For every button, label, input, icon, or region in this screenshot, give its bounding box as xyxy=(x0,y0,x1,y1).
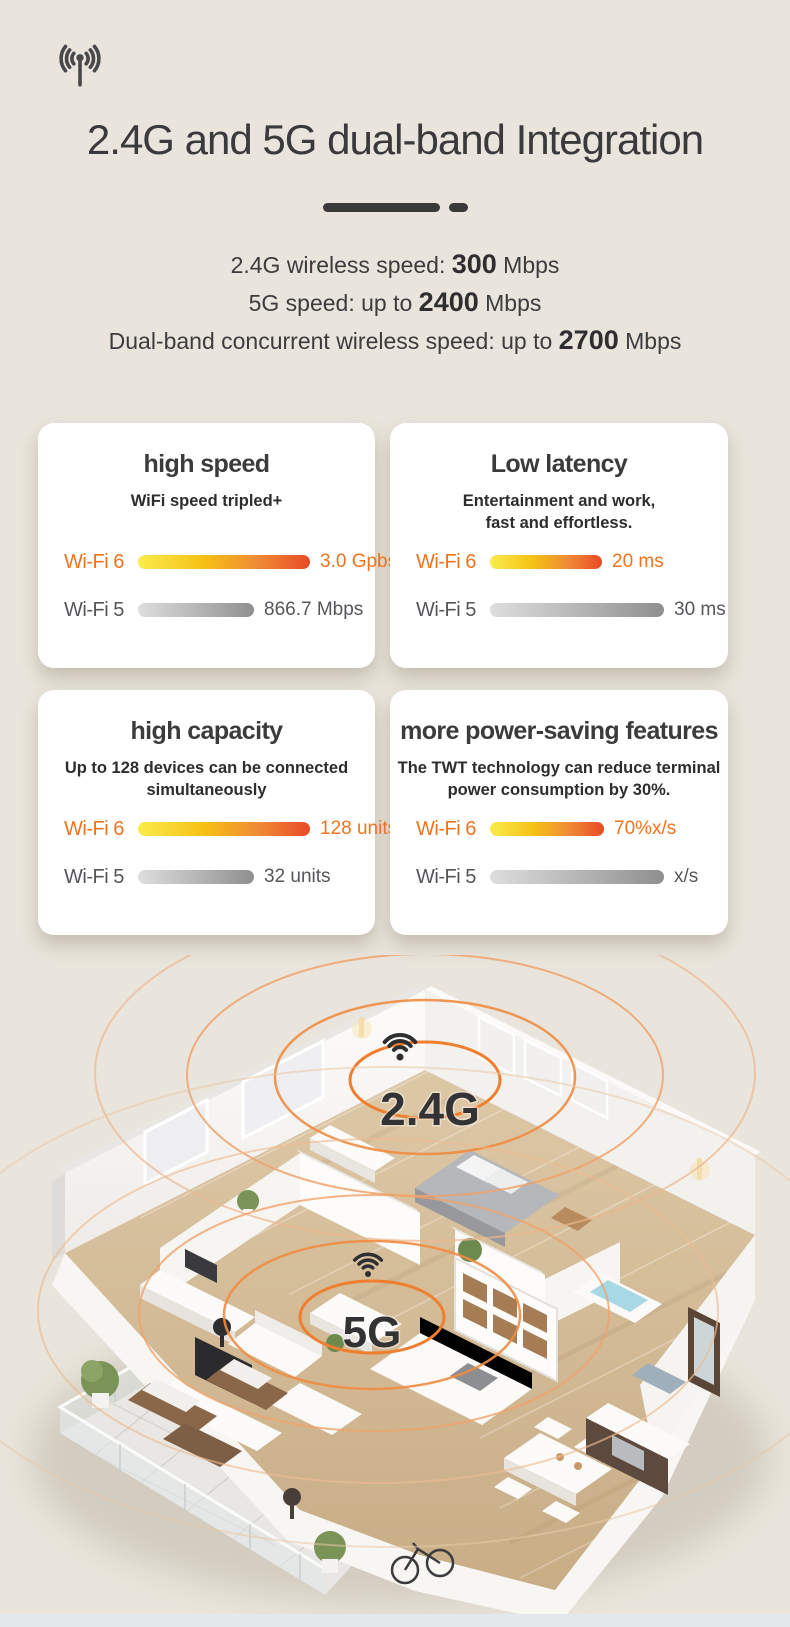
wifi5-value: x/s xyxy=(674,866,698,888)
wifi6-meter-row: Wi-Fi 6 70%x/s xyxy=(416,818,716,840)
wifi6-label: Wi-Fi 6 xyxy=(64,818,128,841)
card-title: high capacity xyxy=(38,717,375,746)
speed-summary: 2.4G wireless speed: 300 Mbps 5G speed: … xyxy=(0,246,790,360)
feature-cards: high speed WiFi speed tripled+ Wi-Fi 6 3… xyxy=(38,423,752,935)
wifi6-label: Wi-Fi 6 xyxy=(416,818,480,841)
speed-line-dualband: Dual-band concurrent wireless speed: up … xyxy=(0,322,790,360)
underline-long-dash xyxy=(323,203,440,212)
card-high-capacity: high capacity Up to 128 devices can be c… xyxy=(38,690,375,935)
wifi5-bar xyxy=(490,603,664,617)
wifi6-meter-row: Wi-Fi 6 3.0 Gpbs xyxy=(64,551,363,573)
wifi5-meter-row: Wi-Fi 5 866.7 Mbps xyxy=(64,599,363,621)
plant xyxy=(314,1531,346,1563)
wifi6-bar xyxy=(138,555,310,569)
wifi5-label: Wi-Fi 5 xyxy=(64,599,128,622)
wifi5-bar xyxy=(138,603,254,617)
wifi6-bar xyxy=(490,822,604,836)
page-background: 2.4G and 5G dual-band Integration 2.4G w… xyxy=(0,0,790,1627)
band-label-5g: 5G xyxy=(343,1308,402,1357)
card-subtitle: The TWT technology can reduce terminal p… xyxy=(390,757,728,802)
wifi6-label: Wi-Fi 6 xyxy=(64,551,128,574)
wifi6-value: 70%x/s xyxy=(614,818,676,840)
floorplan-illustration: 2.4G 5G xyxy=(0,955,790,1615)
wifi6-bar xyxy=(138,822,310,836)
wifi6-bar xyxy=(490,555,602,569)
wifi5-value: 32 units xyxy=(264,866,331,888)
plant xyxy=(237,1190,259,1212)
speed-line-5g: 5G speed: up to 2400 Mbps xyxy=(0,284,790,322)
card-title: Low latency xyxy=(390,450,728,479)
underline-short-dash xyxy=(449,203,468,212)
page-title: 2.4G and 5G dual-band Integration xyxy=(0,116,790,164)
wifi6-meter-row: Wi-Fi 6 128 units xyxy=(64,818,363,840)
wifi5-label: Wi-Fi 5 xyxy=(64,866,128,889)
wifi5-meter-row: Wi-Fi 5 x/s xyxy=(416,866,716,888)
card-power-saving: more power-saving features The TWT techn… xyxy=(390,690,728,935)
band-label-2-4g: 2.4G xyxy=(380,1083,480,1135)
wifi6-meter-row: Wi-Fi 6 20 ms xyxy=(416,551,716,573)
antenna-icon xyxy=(53,36,107,92)
wifi5-meter-row: Wi-Fi 5 32 units xyxy=(64,866,363,888)
wifi5-bar xyxy=(490,870,664,884)
wifi5-value: 30 ms xyxy=(674,599,726,621)
card-title: more power-saving features xyxy=(390,717,728,746)
title-underline xyxy=(0,203,790,212)
wifi6-value: 3.0 Gpbs xyxy=(320,551,397,573)
wifi5-label: Wi-Fi 5 xyxy=(416,599,480,622)
wifi6-value: 20 ms xyxy=(612,551,664,573)
card-subtitle: WiFi speed tripled+ xyxy=(38,490,375,512)
card-high-speed: high speed WiFi speed tripled+ Wi-Fi 6 3… xyxy=(38,423,375,668)
card-subtitle: Up to 128 devices can be connected simul… xyxy=(38,757,375,802)
speed-line-2g: 2.4G wireless speed: 300 Mbps xyxy=(0,246,790,284)
card-title: high speed xyxy=(38,450,375,479)
bottom-strip xyxy=(0,1614,790,1627)
wifi5-bar xyxy=(138,870,254,884)
wifi5-value: 866.7 Mbps xyxy=(264,599,363,621)
card-subtitle: Entertainment and work, fast and effortl… xyxy=(390,490,728,535)
wifi5-meter-row: Wi-Fi 5 30 ms xyxy=(416,599,716,621)
wifi5-label: Wi-Fi 5 xyxy=(416,866,480,889)
wifi6-label: Wi-Fi 6 xyxy=(416,551,480,574)
wifi6-value: 128 units xyxy=(320,818,397,840)
card-low-latency: Low latency Entertainment and work, fast… xyxy=(390,423,728,668)
